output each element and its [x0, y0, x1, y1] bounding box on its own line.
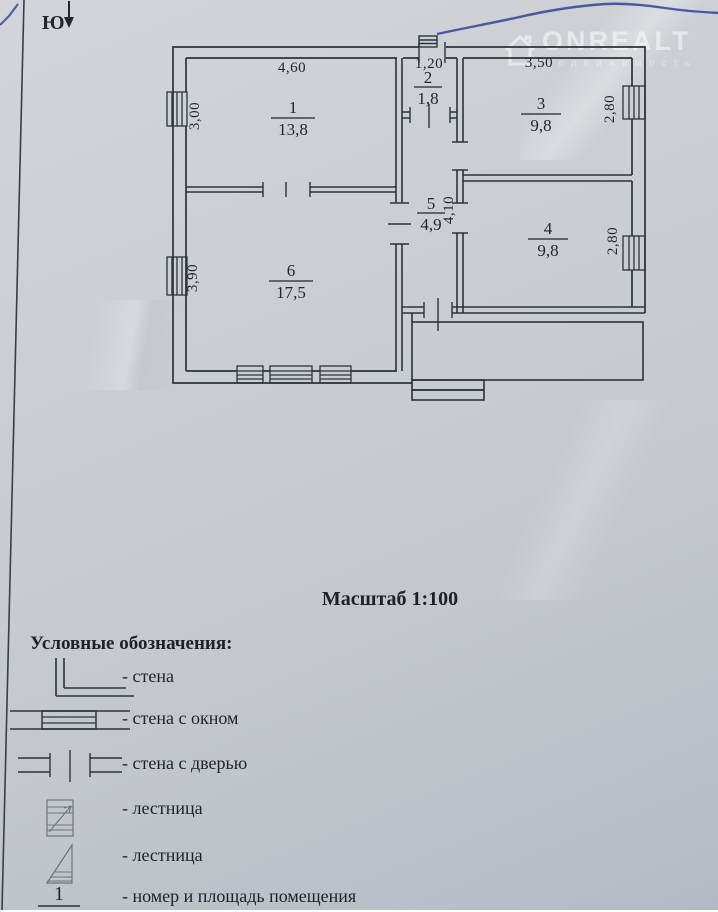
dim-top-room3: 3,50	[525, 55, 553, 71]
porch-step	[412, 390, 484, 400]
interior-walls	[186, 58, 645, 371]
legend-title: Условные обозначения:	[30, 633, 232, 655]
legend: Условные обозначения: - стена - стена с …	[0, 628, 480, 910]
room-labels: 1 13,8 2 1,8 3 9,8 4 9,8 5	[269, 68, 568, 302]
room-label-1: 1 13,8	[271, 98, 315, 139]
svg-text:3: 3	[537, 94, 546, 113]
svg-text:1: 1	[54, 883, 64, 905]
dim-right-room3: 2,80	[602, 95, 618, 123]
pen-mark-top-right	[437, 4, 718, 34]
pen-mark-top-left	[0, 4, 18, 25]
svg-text:4,9: 4,9	[420, 215, 441, 234]
svg-text:1,8: 1,8	[417, 89, 438, 108]
svg-text:1: 1	[289, 98, 298, 117]
scanned-floorplan-page: ONREALT недвижимость Ю	[0, 0, 718, 910]
dim-right-room4: 2,80	[605, 227, 621, 255]
dim-top-room2: 1,20	[415, 56, 443, 72]
scale-caption: Масштаб 1:100	[280, 588, 500, 611]
svg-text:4: 4	[544, 219, 553, 238]
stairs-symbol	[44, 798, 80, 840]
legend-label-wall-window: - стена с окном	[122, 708, 238, 729]
porch-step	[412, 380, 484, 390]
svg-text:5: 5	[427, 194, 436, 213]
svg-text:17,5: 17,5	[276, 283, 306, 302]
compass-arrow-head	[64, 17, 74, 28]
svg-text:9,8: 9,8	[537, 241, 558, 260]
legend-label-stairs-2: - лестница	[122, 845, 203, 866]
svg-text:9,8: 9,8	[530, 116, 551, 135]
legend-label-wall-door: - стена с дверью	[122, 753, 247, 774]
porch	[412, 322, 643, 400]
room-label-2: 2 1,8	[414, 68, 442, 108]
dim-left-room1: 3,00	[187, 102, 203, 130]
room-label-3: 3 9,8	[521, 94, 561, 135]
legend-label-room-number: - номер и площадь помещения	[122, 886, 356, 907]
entry-steps	[419, 36, 437, 47]
svg-text:6: 6	[287, 261, 296, 280]
window-symbols	[167, 86, 645, 383]
legend-label-stairs-1: - лестница	[122, 798, 203, 819]
legend-label-wall: - стена	[122, 666, 174, 687]
dim-corridor: 4,10	[441, 196, 457, 224]
dim-left-room6: 3,90	[185, 264, 201, 292]
wall-door-symbol	[16, 750, 126, 782]
compass-south: Ю	[42, 1, 74, 34]
svg-text:13,8: 13,8	[278, 120, 308, 139]
wall-window-symbol	[10, 706, 132, 734]
room-number-symbol: 1	[34, 878, 84, 912]
compass-label: Ю	[42, 12, 65, 34]
room-label-6: 6 17,5	[269, 261, 313, 302]
exterior-walls	[173, 47, 645, 383]
room-label-4: 4 9,8	[528, 219, 568, 260]
dim-top-room1: 4,60	[278, 60, 306, 76]
